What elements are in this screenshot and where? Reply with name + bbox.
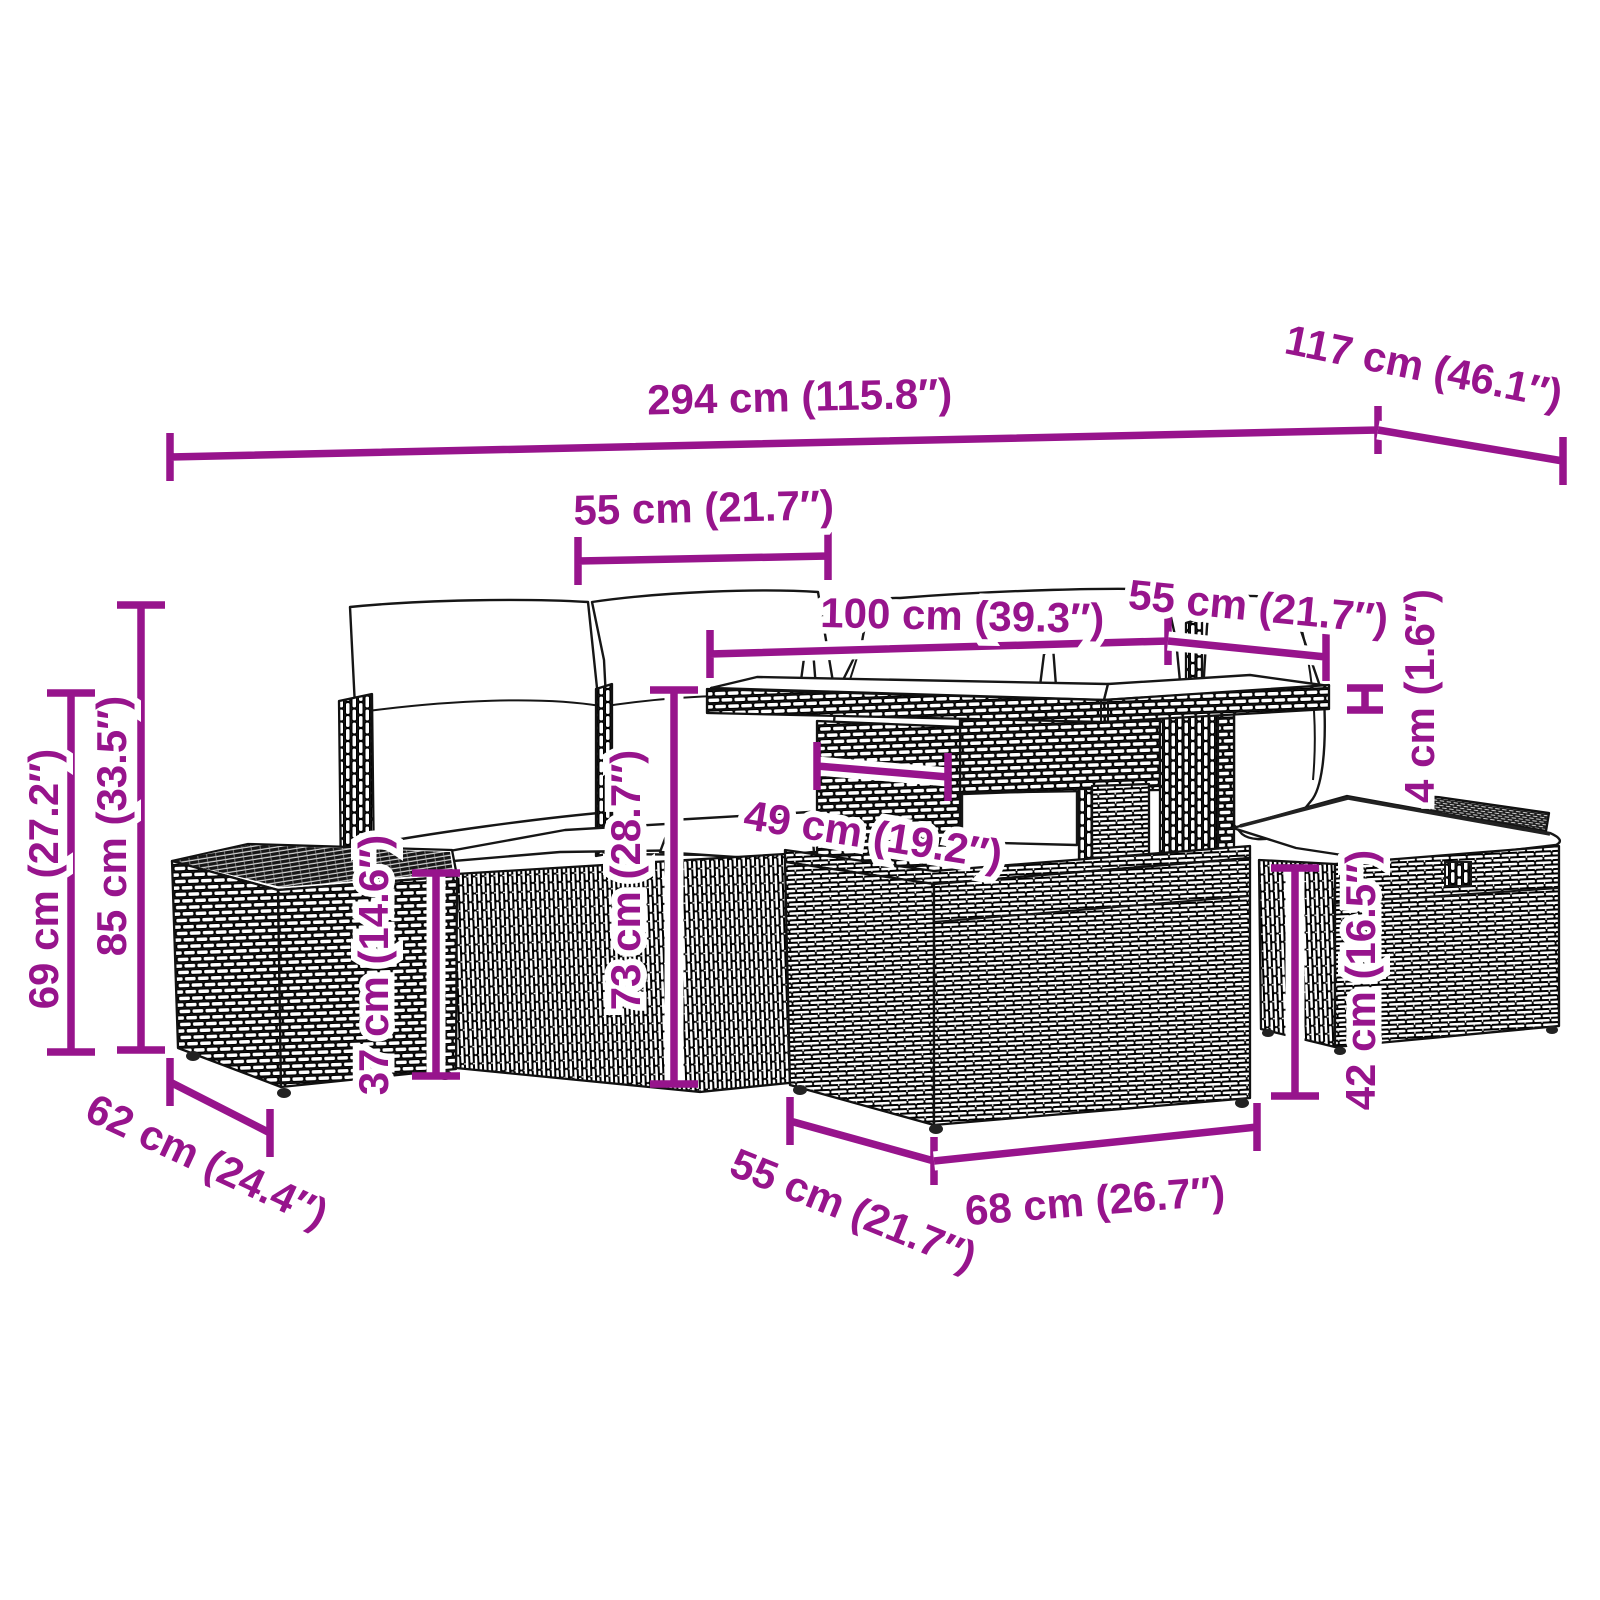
svg-text:100 cm (39.3″): 100 cm (39.3″) — [820, 589, 1105, 642]
svg-text:42 cm (16.5″): 42 cm (16.5″) — [1337, 850, 1384, 1111]
svg-text:37 cm (14.6″): 37 cm (14.6″) — [350, 835, 397, 1096]
svg-text:73 cm (28.7″): 73 cm (28.7″) — [602, 750, 649, 1011]
svg-text:4 cm (1.6″): 4 cm (1.6″) — [1396, 589, 1443, 803]
svg-text:85 cm (33.5″): 85 cm (33.5″) — [88, 696, 135, 957]
svg-text:69 cm (27.2″): 69 cm (27.2″) — [20, 749, 67, 1010]
svg-text:294 cm (115.8″): 294 cm (115.8″) — [647, 370, 953, 424]
svg-text:55 cm (21.7″): 55 cm (21.7″) — [573, 481, 835, 533]
